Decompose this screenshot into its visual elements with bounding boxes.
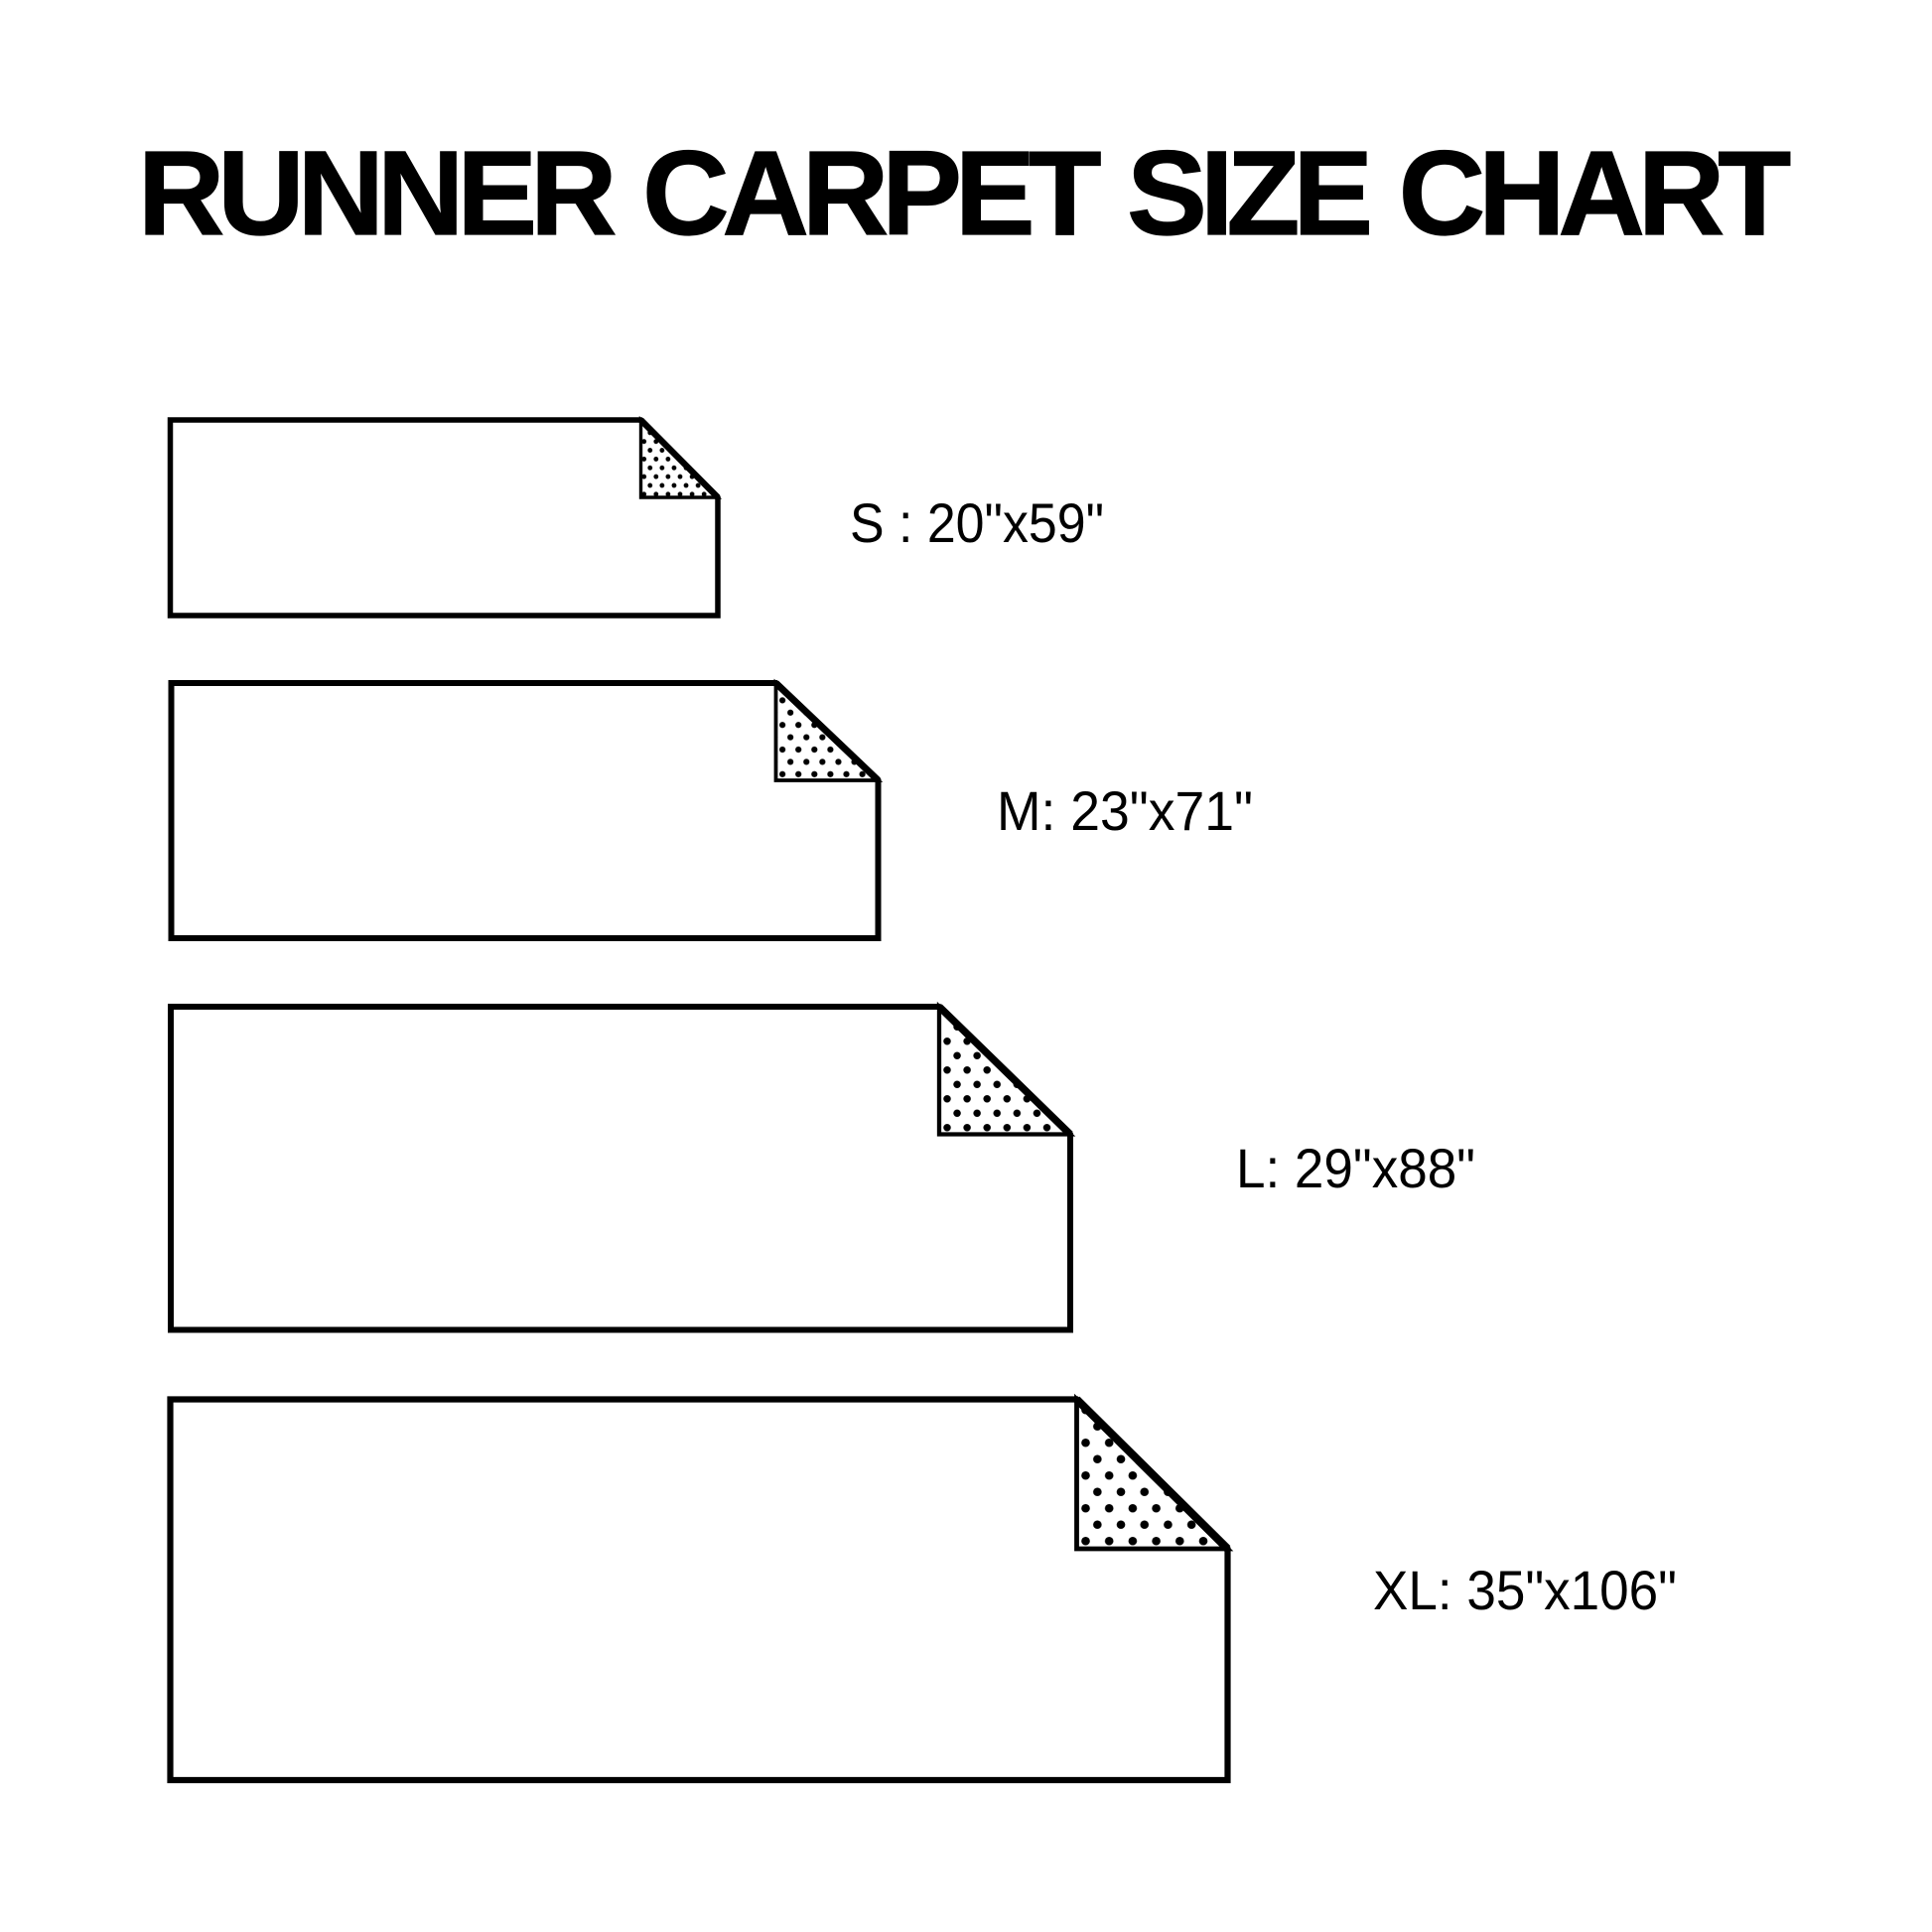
svg-text:M: 23"x71": M: 23"x71" <box>997 779 1253 842</box>
svg-text:S : 20"x59": S : 20"x59" <box>850 491 1104 554</box>
svg-text:L: 29"x88": L: 29"x88" <box>1236 1137 1475 1199</box>
svg-text:RUNNER CARPET SIZE CHART: RUNNER CARPET SIZE CHART <box>138 125 1790 260</box>
svg-text:XL: 35"x106": XL: 35"x106" <box>1373 1559 1677 1621</box>
